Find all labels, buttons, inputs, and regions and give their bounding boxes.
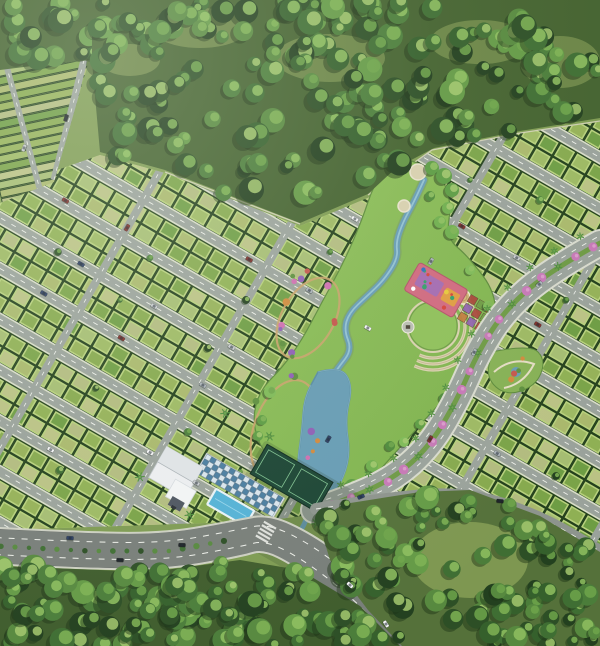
palm-tree [417, 455, 419, 457]
tree-highlight [396, 153, 409, 166]
tree-highlight [303, 37, 311, 45]
tree-highlight [525, 623, 533, 631]
tree-highlight [474, 608, 487, 621]
tree-highlight [157, 22, 170, 35]
tree-highlight [589, 54, 598, 63]
tree-highlight [244, 127, 257, 140]
tree-highlight [240, 23, 251, 34]
tree-highlight [342, 116, 355, 129]
median-shrub [208, 541, 213, 546]
tree-highlight [417, 539, 424, 546]
palm-tree [510, 303, 512, 305]
tree-highlight [336, 23, 343, 30]
tree-highlight [59, 467, 63, 471]
palm-tree [456, 359, 458, 361]
tree-highlight [35, 48, 48, 61]
scene-canvas [0, 0, 600, 646]
tree-highlight [363, 168, 375, 180]
shrub [516, 368, 521, 373]
palm-tree [367, 472, 369, 474]
aerial-site-render: Aerial render of a plotted township with… [0, 0, 600, 646]
tree-highlight [347, 542, 359, 554]
shrub [315, 438, 320, 443]
tree-highlight [248, 179, 262, 193]
tree-highlight [387, 26, 401, 40]
tree-highlight [183, 133, 190, 140]
tree-highlight [447, 590, 457, 600]
tree-highlight [95, 20, 106, 31]
tree-highlight [129, 87, 138, 96]
tree-highlight [123, 150, 130, 157]
tree-highlight [149, 255, 153, 259]
tree-highlight [272, 34, 283, 45]
tree-highlight [449, 562, 459, 572]
tree-highlight [8, 596, 16, 604]
tree-highlight [333, 97, 343, 107]
tree-highlight [210, 112, 219, 121]
car [66, 536, 73, 541]
tree-highlight [555, 473, 559, 477]
tree-highlight [45, 567, 56, 578]
tree-highlight [480, 549, 490, 559]
tree-highlight [258, 569, 265, 576]
tree-highlight [168, 119, 178, 129]
tree-highlight [450, 184, 458, 192]
shrub [298, 276, 305, 283]
median-shrub [110, 548, 116, 554]
tree-highlight [121, 568, 133, 580]
tree-highlight [122, 108, 130, 116]
tree-highlight [269, 110, 282, 123]
flowering-tree-highlight [461, 387, 465, 391]
tree-highlight [204, 165, 212, 173]
tree-highlight [292, 616, 305, 629]
tree-highlight [314, 187, 321, 194]
tree-highlight [186, 8, 197, 19]
flowering-tree-highlight [469, 369, 473, 373]
median-shrub [152, 548, 157, 553]
tree-highlight [107, 618, 119, 630]
tree-highlight [398, 556, 405, 563]
tree-highlight [304, 568, 313, 577]
tree-highlight [307, 11, 321, 25]
tree-highlight [371, 506, 380, 515]
shrub [305, 455, 310, 460]
tree-highlight [551, 95, 559, 103]
tree-highlight [57, 10, 71, 24]
tree-highlight [543, 532, 549, 538]
tree-highlight [153, 127, 163, 137]
tree-highlight [64, 573, 76, 585]
tree-highlight [301, 610, 308, 617]
tree-highlight [191, 61, 202, 72]
palm-tree [430, 412, 432, 414]
median-shrub [40, 546, 45, 551]
palm-tree [392, 457, 394, 459]
tree-highlight [457, 29, 469, 41]
tree-highlight [455, 130, 465, 140]
tree-highlight [285, 161, 292, 168]
tree-highlight [391, 80, 404, 93]
palm-tree [529, 266, 531, 268]
shrub [280, 341, 286, 347]
tree-highlight [521, 16, 535, 30]
tree-highlight [207, 345, 211, 349]
tree-highlight [430, 162, 438, 170]
tree-highlight [287, 1, 299, 13]
tree-highlight [309, 74, 318, 83]
tree-highlight [171, 634, 178, 641]
tree-highlight [514, 628, 526, 640]
tree-highlight [167, 607, 178, 618]
tree-highlight [431, 35, 440, 44]
tree-highlight [248, 593, 262, 607]
tree-highlight [472, 129, 480, 137]
tree-highlight [51, 47, 63, 59]
tree-highlight [59, 630, 73, 644]
shrub [519, 386, 525, 392]
shrub [290, 355, 294, 359]
flowering-tree-highlight [575, 254, 579, 258]
tree-highlight [487, 623, 499, 635]
shrub [520, 356, 524, 360]
tree-highlight [442, 170, 451, 179]
tree-highlight [210, 600, 221, 611]
tree-highlight [421, 68, 431, 78]
tree-highlight [257, 432, 263, 438]
car-windshield [181, 544, 184, 547]
tree-highlight [429, 0, 440, 11]
tree-highlight [532, 53, 545, 66]
tree-highlight [560, 103, 572, 115]
tree-highlight [175, 3, 186, 14]
tree-highlight [329, 250, 332, 253]
tree-highlight [369, 85, 382, 98]
tree-highlight [344, 500, 350, 506]
tree-highlight [243, 1, 257, 15]
tree-highlight [108, 44, 119, 55]
tree-highlight [221, 186, 230, 195]
tree-highlight [146, 629, 154, 637]
tree-highlight [482, 24, 491, 33]
tree-highlight [497, 584, 506, 593]
tree-highlight [134, 600, 141, 607]
tree-highlight [220, 2, 233, 15]
tree-highlight [466, 495, 476, 505]
shrub [291, 279, 296, 284]
tree-highlight [135, 572, 144, 581]
tree-highlight [9, 569, 20, 580]
tree-highlight [440, 119, 454, 133]
tree-highlight [490, 100, 498, 108]
tree-highlight [341, 635, 351, 645]
median-shrub [167, 549, 171, 553]
tree-highlight [25, 573, 32, 580]
car [116, 558, 123, 563]
flowering-tree-highlight [498, 317, 502, 321]
tree-highlight [230, 582, 237, 589]
flowering-tree-highlight [487, 333, 491, 337]
palm-tree [486, 308, 488, 310]
tree-highlight [571, 637, 577, 643]
tree-highlight [502, 536, 515, 549]
tree-highlight [219, 557, 227, 565]
shrub [290, 274, 295, 279]
flowering-tree-highlight [592, 244, 596, 248]
tree-highlight [89, 613, 99, 623]
tree-highlight [370, 461, 377, 468]
tree-highlight [156, 47, 164, 55]
tree-highlight [312, 34, 325, 47]
tree-highlight [507, 124, 516, 133]
tree-highlight [284, 586, 293, 595]
palm-tree [557, 265, 559, 267]
tree-highlight [403, 438, 409, 444]
tree-highlight [255, 155, 266, 166]
car [496, 499, 504, 504]
median-shrub [221, 538, 227, 544]
car-windshield [69, 537, 72, 540]
tree-highlight [378, 632, 388, 642]
tree-highlight [539, 197, 543, 201]
tree-highlight [198, 22, 207, 31]
tree-highlight [532, 588, 538, 594]
shrub [332, 320, 338, 326]
median-shrub [69, 548, 73, 552]
shrub [308, 428, 315, 435]
palm-tree [451, 406, 453, 408]
median-shrub [12, 544, 17, 549]
tree-highlight [122, 123, 136, 137]
tree-highlight [226, 609, 233, 616]
tree-highlight [357, 625, 370, 638]
shrub [253, 398, 260, 405]
tree-highlight [144, 86, 156, 98]
tree-highlight [50, 601, 62, 613]
flowering-tree-highlight [432, 439, 436, 443]
tree-highlight [419, 523, 425, 529]
palm-tree [470, 333, 472, 335]
median-shrub [138, 548, 144, 554]
tree-highlight [95, 385, 99, 389]
tree-highlight [183, 155, 195, 167]
park-plaza [398, 200, 410, 212]
tree-highlight [399, 119, 410, 130]
flowering-tree-highlight [387, 479, 391, 483]
tree-highlight [545, 584, 556, 595]
tree-highlight [291, 154, 300, 163]
tree-highlight [579, 546, 588, 555]
tree-highlight [311, 0, 319, 8]
median-shrub [27, 546, 31, 550]
tree-highlight [252, 85, 263, 96]
tree-highlight [379, 518, 386, 525]
tree-highlight [374, 7, 382, 15]
tree-highlight [183, 580, 196, 593]
car [178, 543, 185, 548]
tree-highlight [187, 429, 191, 433]
tree-highlight [574, 55, 587, 68]
tree-highlight [373, 554, 381, 562]
tree-highlight [549, 64, 560, 75]
tree-highlight [172, 578, 183, 589]
tree-highlight [146, 604, 155, 613]
tree-highlight [385, 569, 397, 581]
car-windshield [119, 559, 122, 562]
tree-highlight [433, 592, 445, 604]
tree-highlight [549, 611, 558, 620]
tree-highlight [252, 58, 260, 66]
tree-highlight [499, 603, 510, 614]
tree-highlight [419, 420, 425, 426]
tree-highlight [269, 62, 282, 75]
tree-highlight [438, 217, 445, 224]
tree-highlight [494, 68, 503, 77]
tree-highlight [173, 138, 183, 148]
tree-highlight [357, 122, 371, 136]
tree-highlight [593, 627, 600, 634]
tree-highlight [565, 567, 573, 575]
tree-highlight [375, 37, 386, 48]
tree-highlight [80, 48, 87, 55]
tree-highlight [506, 517, 514, 525]
tree-highlight [200, 12, 210, 22]
tree-highlight [584, 586, 596, 598]
tree-highlight [74, 633, 87, 646]
tree-highlight [233, 627, 243, 637]
tree-highlight [340, 570, 349, 579]
tree-highlight [469, 266, 475, 272]
tree-highlight [546, 624, 555, 633]
palm-tree [368, 488, 370, 490]
tree-highlight [221, 31, 228, 38]
car-windshield [498, 500, 501, 503]
flowering-tree-highlight [403, 467, 407, 471]
tree-highlight [261, 416, 267, 422]
tree-highlight [389, 442, 395, 448]
tree-highlight [263, 576, 274, 587]
tree-highlight [71, 10, 78, 17]
flowering-tree-highlight [442, 422, 446, 426]
tree-highlight [435, 507, 441, 513]
tree-highlight [272, 47, 280, 55]
tree-highlight [340, 610, 350, 620]
tree-highlight [415, 554, 427, 566]
palm-tree [506, 286, 508, 288]
tree-highlight [424, 488, 437, 501]
tree-highlight [35, 607, 44, 616]
shrub [305, 268, 310, 273]
tree-highlight [507, 499, 515, 507]
tree-highlight [296, 636, 303, 643]
tree-highlight [397, 632, 404, 639]
tree-highlight [536, 521, 546, 531]
flowering-tree-highlight [526, 288, 530, 292]
palm-tree [445, 386, 447, 388]
tree-highlight [516, 86, 523, 93]
tree-highlight [296, 57, 305, 66]
tree-highlight [450, 226, 458, 234]
tree-highlight [465, 111, 474, 120]
tree-highlight [28, 28, 40, 40]
tree-highlight [80, 582, 93, 595]
tree-highlight [103, 85, 115, 97]
tree-highlight [268, 387, 275, 394]
tree-highlight [378, 113, 387, 122]
tree-highlight [570, 590, 581, 601]
tree-highlight [469, 178, 472, 181]
tree-highlight [580, 579, 586, 585]
tree-highlight [256, 621, 270, 635]
median-shrub [54, 547, 59, 552]
gazebo [406, 325, 410, 329]
tree-highlight [57, 249, 61, 253]
flowering-tree-highlight [541, 275, 545, 279]
tree-highlight [565, 297, 569, 301]
tree-highlight [245, 297, 249, 301]
tree-highlight [393, 594, 404, 605]
tree-highlight [315, 89, 327, 101]
median-shrub [193, 543, 199, 549]
tree-highlight [521, 521, 532, 532]
palm-tree [476, 352, 478, 354]
palm-tree [414, 437, 416, 439]
tree-highlight [132, 618, 141, 627]
tree-highlight [429, 192, 435, 198]
tree-highlight [565, 544, 573, 552]
tree-highlight [482, 62, 490, 70]
tree-highlight [376, 134, 385, 143]
tree-highlight [33, 626, 42, 635]
median-shrub [124, 549, 129, 554]
tree-highlight [336, 527, 349, 540]
median-shrub [82, 548, 87, 553]
tree-highlight [216, 566, 226, 576]
shrub [279, 327, 283, 331]
tree-highlight [266, 590, 275, 599]
shrub [289, 373, 294, 378]
tree-highlight [446, 203, 453, 210]
tree-highlight [174, 77, 184, 87]
shrub [511, 370, 517, 376]
tree-highlight [157, 564, 168, 575]
tree-highlight [51, 580, 62, 591]
tree-highlight [126, 14, 136, 24]
shrub [324, 282, 331, 289]
tree-highlight [320, 139, 334, 153]
tree-highlight [367, 59, 381, 73]
tree-highlight [119, 298, 122, 301]
tree-highlight [450, 611, 461, 622]
shrub [508, 376, 514, 382]
tree-highlight [335, 50, 348, 63]
tree-highlight [307, 583, 319, 595]
tree-highlight [383, 528, 395, 540]
tree-highlight [531, 606, 539, 614]
tree-highlight [465, 511, 472, 518]
tree-highlight [415, 133, 423, 141]
palm-tree [579, 235, 581, 237]
tree-highlight [214, 587, 222, 595]
tree-highlight [396, 108, 404, 116]
tree-highlight [449, 81, 463, 95]
median-shrub [97, 549, 102, 554]
shrub [283, 298, 291, 306]
tree-highlight [362, 527, 372, 537]
palm-tree [553, 250, 555, 252]
tree-highlight [552, 77, 560, 85]
tree-highlight [555, 49, 563, 57]
